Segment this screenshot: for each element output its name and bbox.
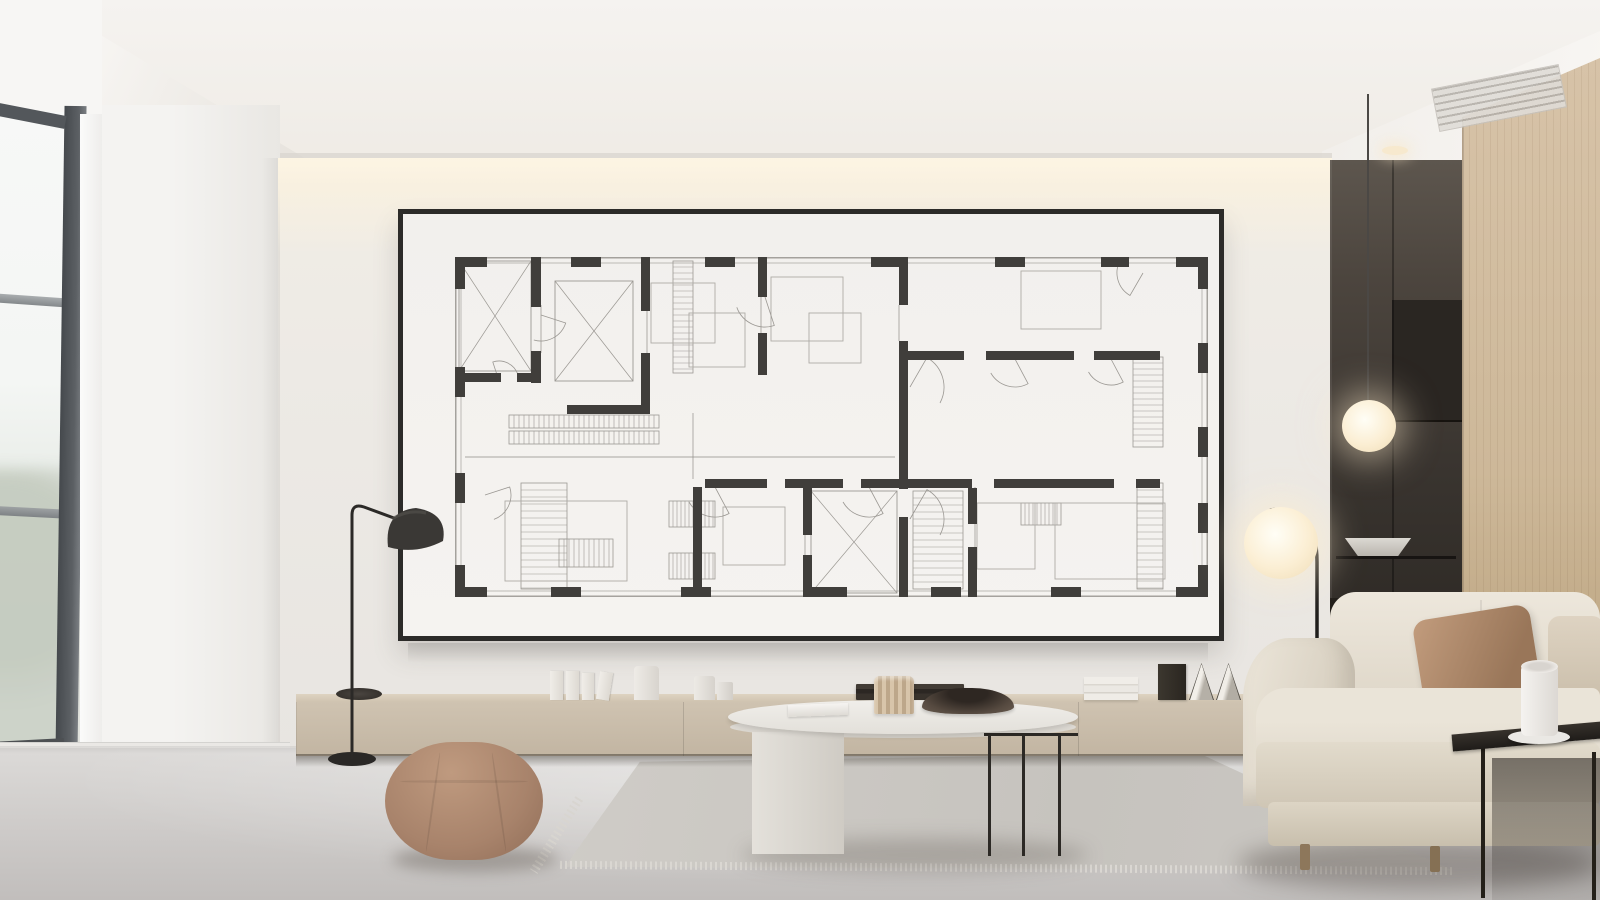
credenza-seam — [1078, 702, 1079, 756]
niche-bowl — [1342, 538, 1414, 556]
credenza-seam — [683, 702, 684, 756]
coffee-table-rail — [984, 733, 1078, 736]
pendant-lamp-cord — [1367, 94, 1369, 404]
dome-floor-lamp — [320, 495, 460, 773]
pendant-lamp-globe — [1342, 400, 1396, 452]
coffee-table-metal-leg — [1058, 736, 1061, 856]
white-book-stack — [1084, 677, 1138, 700]
book — [582, 673, 594, 700]
white-vase — [634, 666, 659, 700]
fluted-vase — [874, 676, 914, 714]
book — [550, 671, 563, 700]
niche-cabinet-hood — [1392, 300, 1462, 422]
arc-lamp-globe — [1244, 507, 1318, 579]
pouf-seam — [400, 780, 528, 783]
notebook — [788, 703, 848, 717]
wood-panel — [1462, 58, 1600, 650]
dark-frame-object — [1158, 664, 1186, 700]
coffee-table-metal-leg — [988, 736, 991, 856]
side-table-shadow-area — [1492, 758, 1600, 900]
dark-bowl — [922, 688, 1014, 714]
sofa-leg — [1430, 846, 1440, 872]
artwork-shadow — [408, 643, 1208, 663]
niche-shelf — [1336, 556, 1456, 559]
mug-rim — [1521, 660, 1558, 673]
side-table-leg — [1592, 752, 1596, 900]
side-table-leg — [1481, 744, 1485, 898]
floor-plan-svg — [455, 257, 1208, 597]
white-jar — [717, 682, 733, 700]
lamp-dome-shade — [388, 508, 444, 550]
recessed-downlight — [1382, 146, 1408, 155]
left-wall — [100, 105, 280, 760]
book — [566, 671, 579, 700]
white-jar — [694, 676, 715, 700]
living-room-scene — [0, 0, 1600, 900]
coffee-table-slab-leg — [752, 732, 844, 854]
sofa-leg — [1300, 844, 1310, 870]
artwork-frame — [398, 209, 1224, 641]
coffee-table-metal-leg — [1022, 736, 1025, 856]
pouf — [385, 742, 543, 860]
window-jamb — [80, 114, 102, 754]
mug — [1521, 666, 1558, 736]
floor-plan-poster — [403, 214, 1219, 636]
upper-left-wall — [0, 0, 102, 120]
